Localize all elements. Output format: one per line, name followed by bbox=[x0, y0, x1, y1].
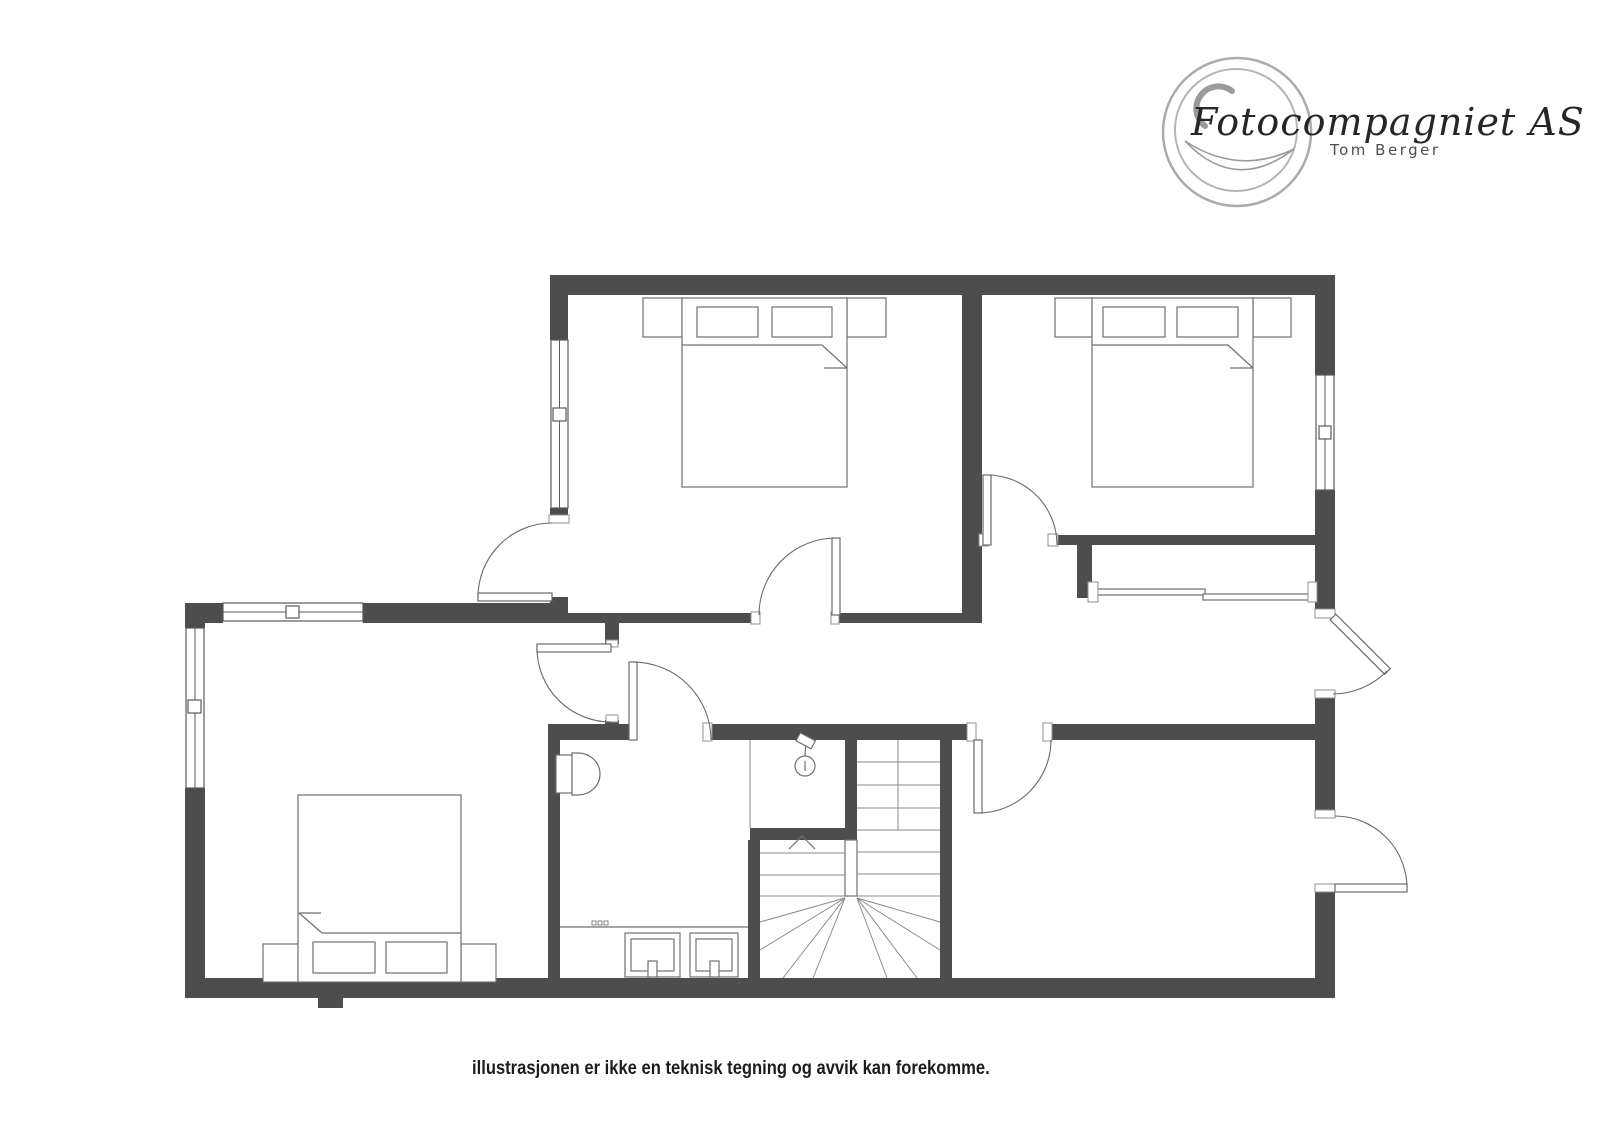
bed-icon bbox=[643, 298, 886, 487]
nightstand-icon bbox=[643, 298, 682, 337]
bed-icon bbox=[1055, 298, 1291, 487]
balcony-door bbox=[1335, 816, 1407, 892]
logo-person-name: Tom Berger bbox=[1330, 141, 1441, 159]
sink-icon bbox=[690, 933, 738, 977]
nightstand-icon bbox=[461, 944, 496, 982]
balcony-door bbox=[1330, 614, 1390, 694]
shower-icon bbox=[750, 733, 815, 828]
wardrobe-rail-icon bbox=[1088, 582, 1317, 602]
pillow-icon bbox=[386, 942, 447, 973]
terrace-door bbox=[478, 523, 552, 601]
floor-plan-page: Fotocompagniet AS Tom Berger illustrasjo… bbox=[0, 0, 1600, 1131]
window bbox=[551, 340, 568, 508]
room-door bbox=[974, 740, 1051, 813]
pillow-icon bbox=[1103, 307, 1165, 337]
chimney-stub bbox=[318, 996, 343, 1008]
stair-railing bbox=[845, 840, 857, 896]
window bbox=[1316, 375, 1334, 490]
toilet-icon bbox=[556, 753, 600, 795]
window bbox=[186, 628, 204, 788]
bed-icon bbox=[263, 795, 496, 982]
bedroom-door bbox=[759, 538, 840, 615]
floor-plan-drawing bbox=[0, 0, 1600, 1131]
pillow-icon bbox=[697, 307, 758, 337]
pillow-icon bbox=[772, 307, 832, 337]
pillow-icon bbox=[313, 942, 375, 973]
logo-company-name: Fotocompagniet AS bbox=[1191, 100, 1531, 144]
bathroom-door bbox=[629, 662, 711, 740]
window bbox=[223, 603, 363, 621]
pillow-icon bbox=[1177, 307, 1238, 337]
nightstand-icon bbox=[1055, 298, 1092, 337]
bedroom-door bbox=[983, 475, 1057, 545]
bedroom-door bbox=[537, 644, 611, 722]
nightstand-icon bbox=[263, 944, 298, 982]
sink-icon bbox=[625, 933, 680, 977]
nightstand-icon bbox=[1253, 298, 1291, 337]
nightstand-icon bbox=[847, 298, 886, 337]
disclaimer-caption: illustrasjonen er ikke en teknisk tegnin… bbox=[472, 1057, 990, 1080]
double-sink-vanity-icon bbox=[560, 921, 748, 977]
